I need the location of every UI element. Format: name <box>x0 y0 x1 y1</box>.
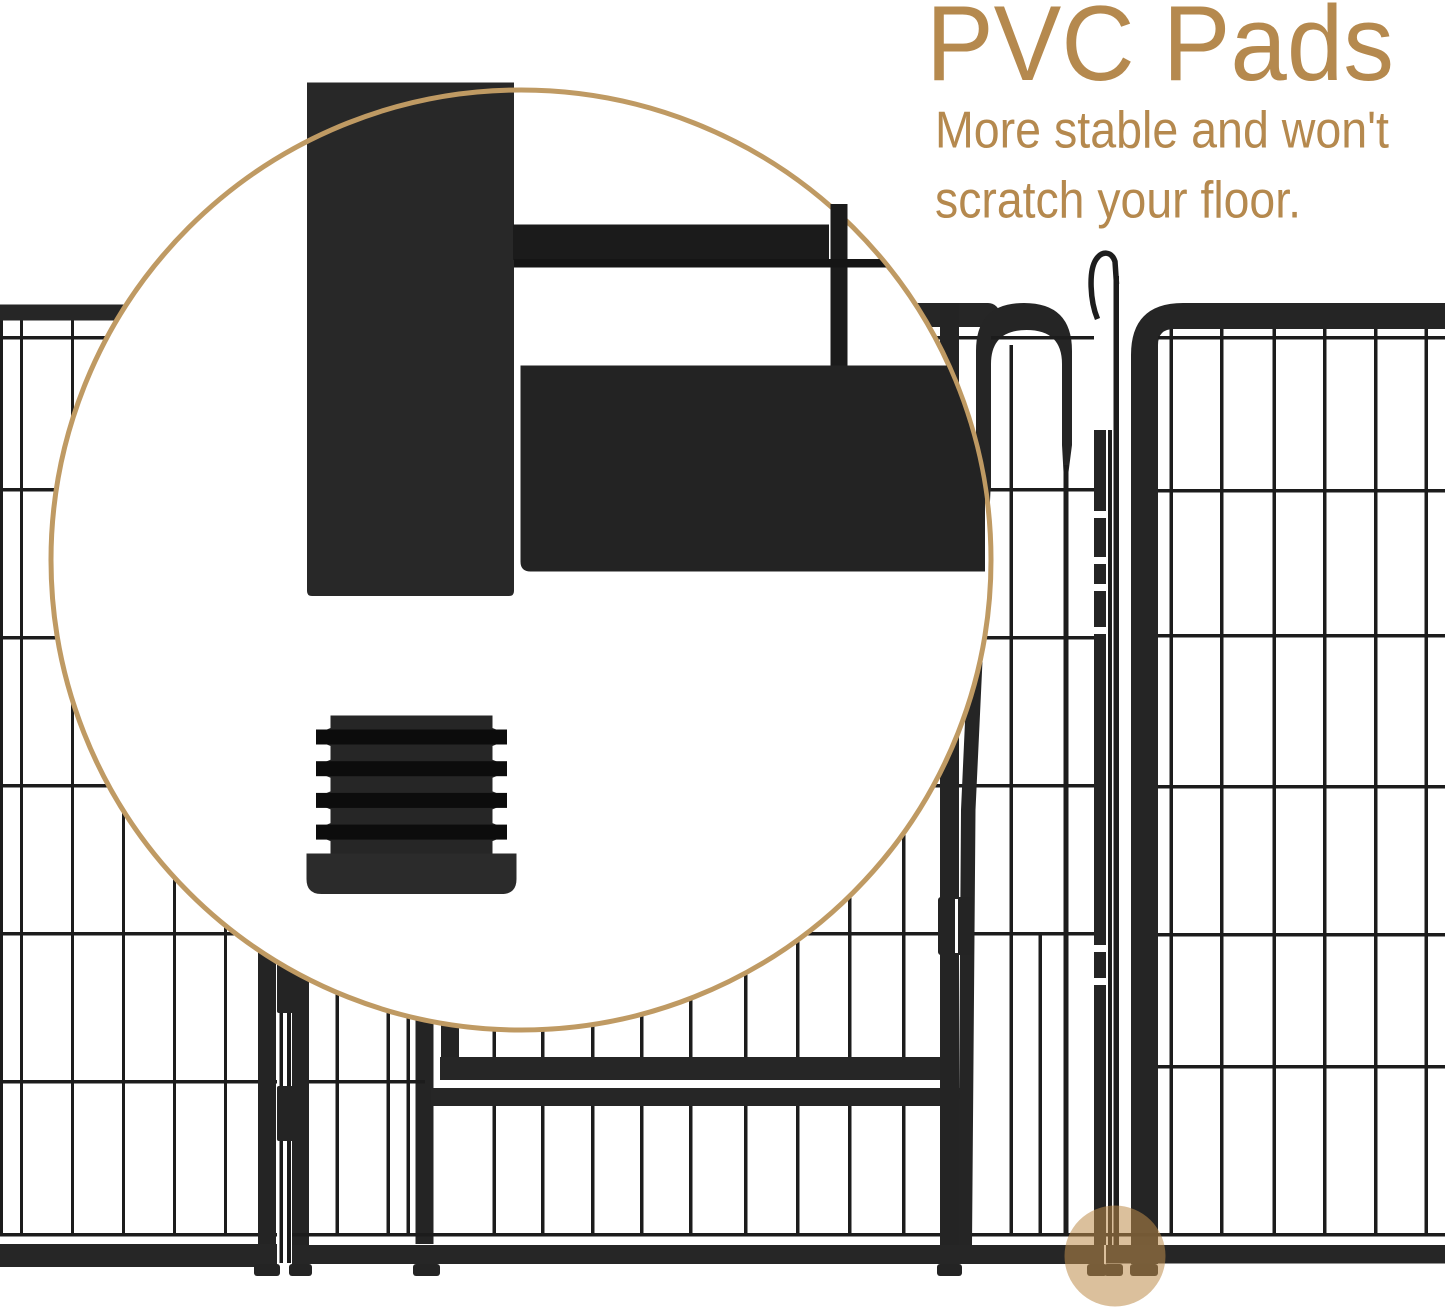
svg-text:scratch your floor.: scratch your floor. <box>935 172 1301 230</box>
svg-text:PVC Pads: PVC Pads <box>926 0 1394 103</box>
svg-text:More stable and won't: More stable and won't <box>935 102 1389 160</box>
